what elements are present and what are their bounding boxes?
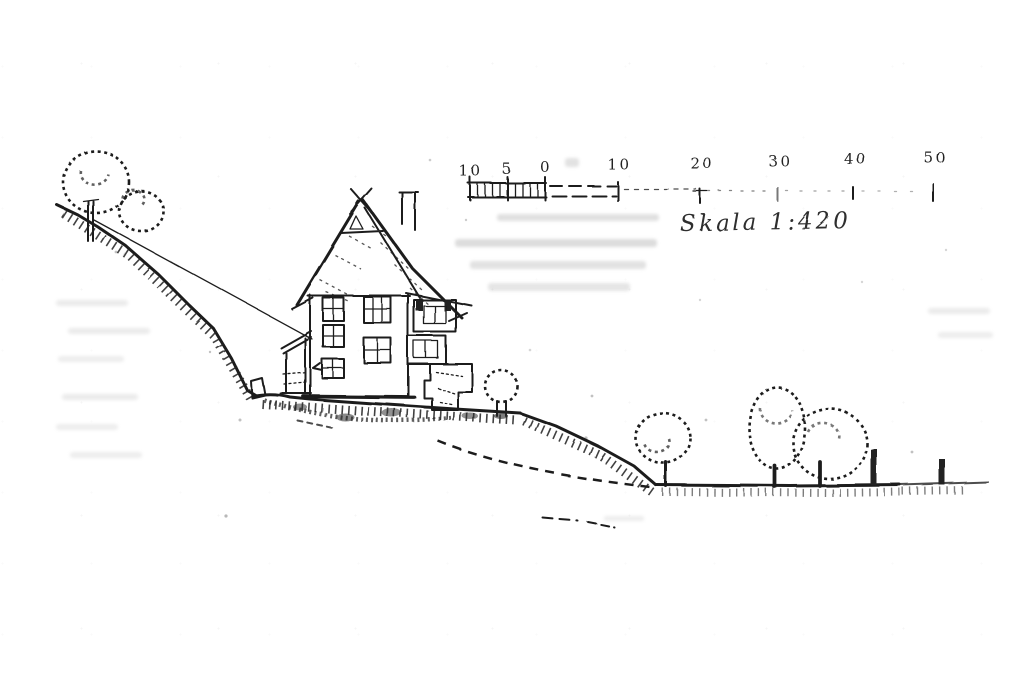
terrain-profile bbox=[57, 205, 988, 527]
valley-hatching bbox=[662, 492, 900, 493]
roof-collar-beam bbox=[341, 231, 383, 233]
window-mid-left bbox=[323, 325, 344, 347]
ghost-bleedthrough-text bbox=[56, 158, 993, 521]
scale-tick-label: 0 bbox=[540, 158, 552, 176]
fence-post-1 bbox=[871, 449, 877, 485]
scale-tick-label: 10 bbox=[608, 156, 632, 174]
house-roof bbox=[292, 189, 467, 321]
tree-large-1 bbox=[749, 387, 805, 487]
roof-finial-cross bbox=[350, 189, 373, 214]
tree-large-2 bbox=[793, 409, 867, 486]
scale-bar-dashes bbox=[550, 182, 933, 203]
chimney bbox=[399, 192, 418, 230]
window-upper-left bbox=[323, 298, 344, 321]
mid-slope-hatching bbox=[524, 421, 652, 492]
mid-slope-line bbox=[520, 413, 656, 485]
dashed-mark-3 bbox=[298, 421, 336, 429]
fence-post-2 bbox=[939, 459, 945, 485]
vegetation bbox=[63, 151, 945, 487]
scale-caption: Skala 1:420 bbox=[680, 208, 852, 237]
tree-top-left bbox=[63, 151, 163, 241]
house-right-wing bbox=[406, 293, 472, 410]
house-section bbox=[280, 189, 472, 410]
gable-vent bbox=[350, 216, 363, 229]
hillside-section-drawing: 10 5 0 10 20 30 40 50 Skala 1:420 bbox=[0, 0, 1024, 682]
scale-bar: 10 5 0 10 20 30 40 50 Skala 1:420 bbox=[459, 149, 948, 237]
terrace-steps bbox=[424, 364, 472, 410]
window-lower-left bbox=[313, 359, 344, 378]
window-upper-right bbox=[364, 297, 391, 323]
valley-ground-line bbox=[656, 485, 900, 486]
scale-bar-ruler bbox=[468, 177, 546, 200]
dashed-projection-line bbox=[438, 441, 650, 487]
scale-tick-label: 5 bbox=[502, 160, 514, 178]
window-mid-right bbox=[364, 338, 391, 363]
scale-bar-numbers: 10 5 0 10 20 30 40 50 bbox=[459, 149, 948, 180]
house-porch bbox=[280, 331, 311, 393]
house-wall bbox=[303, 295, 414, 397]
house-base-line bbox=[303, 396, 414, 397]
dashed-mark-2 bbox=[588, 522, 614, 527]
scale-tick-label: 50 bbox=[924, 149, 948, 167]
scale-tick-label: 20 bbox=[690, 154, 714, 172]
slope-to-house-line bbox=[94, 220, 312, 339]
scale-tick-label: 10 bbox=[459, 162, 483, 180]
scale-tick-label: 30 bbox=[768, 152, 792, 170]
dashed-mark-1 bbox=[543, 518, 578, 521]
valley-hatching-faint bbox=[902, 490, 966, 491]
scanned-drawing-page: 10 5 0 10 20 30 40 50 Skala 1:420 bbox=[0, 0, 1024, 682]
scale-tick-label: 40 bbox=[844, 150, 868, 168]
